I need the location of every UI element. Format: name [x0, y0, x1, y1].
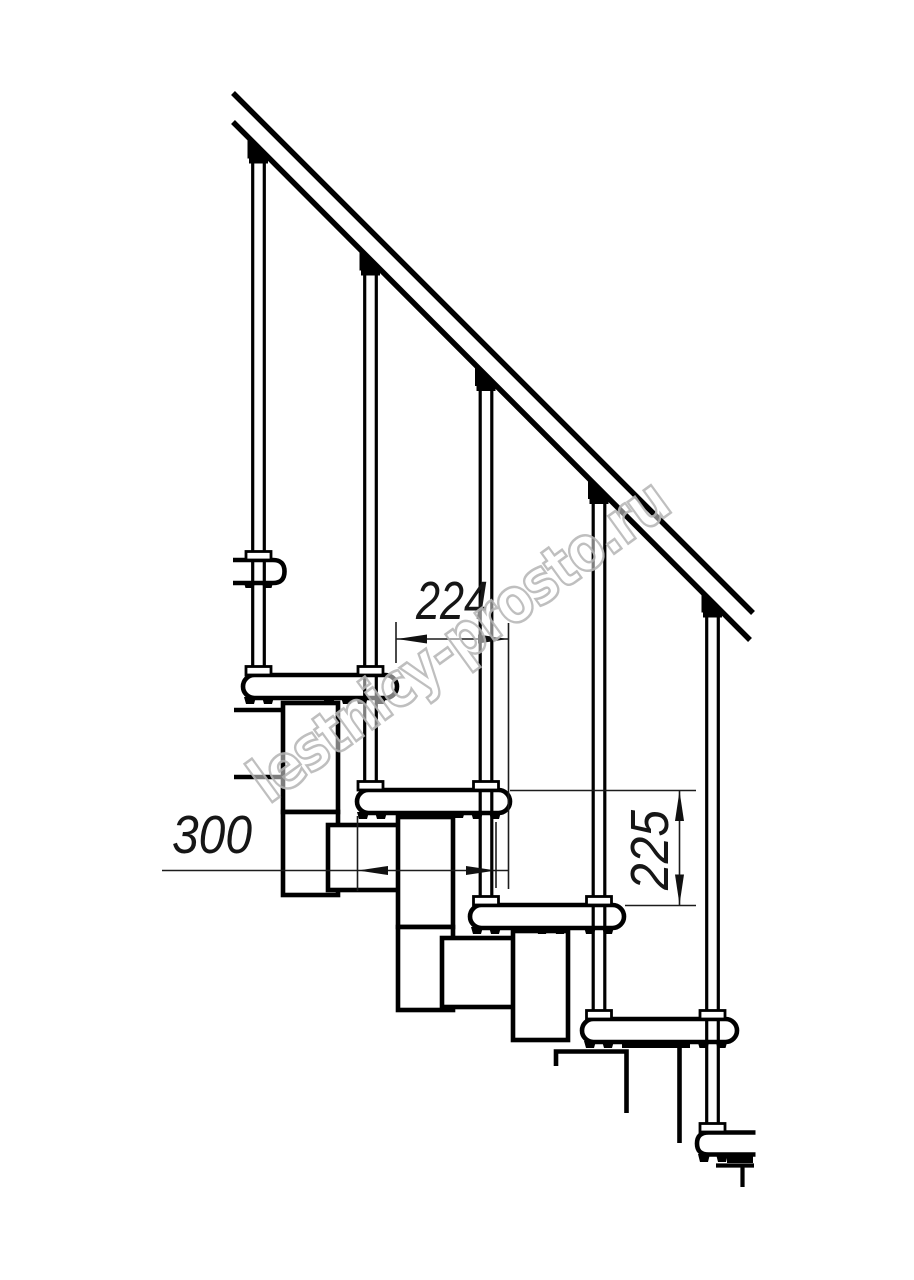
dimension-label-step-rise: 225 [620, 809, 680, 891]
foot [474, 897, 499, 906]
baluster-5 [707, 613, 719, 1133]
tread-1-fragment [233, 560, 285, 583]
tread-4 [470, 905, 624, 928]
tread-6-fragment [697, 1133, 756, 1155]
support-column [513, 931, 568, 1040]
foot [246, 667, 271, 676]
staircase-side-elevation-drawing: 224 300 225 lestnicy-prosto.ru [0, 0, 914, 1280]
collar [474, 782, 499, 791]
support-module-cut-bottom [716, 1166, 754, 1188]
support-column [398, 817, 453, 927]
square-module [328, 825, 403, 890]
foot [358, 782, 383, 791]
support-column-cut [556, 1052, 627, 1114]
collar [587, 897, 612, 906]
staircase-drawing-page: 224 300 225 lestnicy-prosto.ru [0, 0, 914, 1280]
tread-5 [582, 1019, 737, 1042]
collar [700, 1011, 725, 1020]
foot [587, 1011, 612, 1020]
foot [700, 1124, 725, 1133]
baluster-1 [253, 159, 265, 676]
watermark-text: lestnicy-prosto.ru [235, 464, 682, 817]
collar [246, 552, 271, 561]
dimension-label-tread-depth: 300 [172, 805, 252, 865]
tread-3 [357, 790, 510, 813]
square-module [442, 938, 518, 1007]
